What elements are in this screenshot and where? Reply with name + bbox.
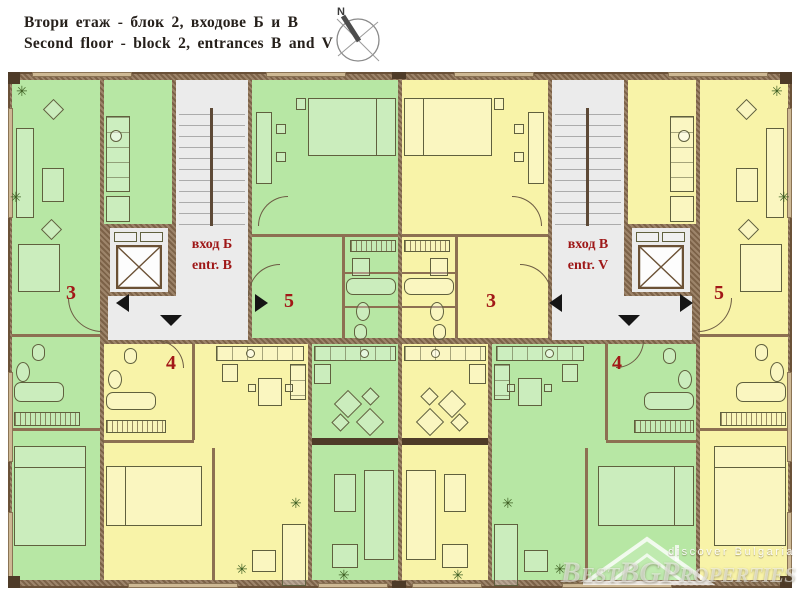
bed-pillow-line bbox=[125, 467, 126, 525]
toilet bbox=[433, 324, 446, 340]
plant: ✳ bbox=[452, 568, 464, 582]
window-sill bbox=[8, 512, 13, 582]
washing-machine bbox=[352, 258, 370, 276]
armchair bbox=[252, 550, 276, 572]
toilet bbox=[755, 344, 768, 361]
kitchen-sink bbox=[110, 130, 122, 142]
bed-pillow-line bbox=[715, 467, 785, 468]
desk-chair bbox=[514, 152, 524, 162]
kitchen-sink bbox=[431, 349, 440, 358]
stair-rail bbox=[210, 108, 213, 226]
side-table bbox=[444, 474, 466, 512]
floor-plan: ✳ ✳ ✳ bbox=[8, 72, 792, 588]
desk-chair bbox=[514, 124, 524, 134]
wardrobe bbox=[14, 412, 80, 426]
dining-chair bbox=[544, 384, 552, 392]
kitchen-counter bbox=[106, 116, 130, 192]
stove bbox=[222, 364, 238, 382]
wardrobe bbox=[350, 240, 396, 252]
plant: ✳ bbox=[771, 84, 783, 98]
side-table bbox=[334, 474, 356, 512]
arrow-right-icon bbox=[255, 294, 268, 312]
plant: ✳ bbox=[236, 562, 248, 576]
entrance-b-label: вход Б entr. B bbox=[176, 234, 248, 276]
plant: ✳ bbox=[502, 496, 514, 510]
dining-chair bbox=[248, 384, 256, 392]
storage-box bbox=[140, 232, 163, 242]
stairwell-left bbox=[176, 80, 248, 228]
apartment-number-4-left: 4 bbox=[166, 352, 176, 375]
page-title: Втори етаж - блок 2, входове Б и В Secon… bbox=[24, 12, 333, 54]
bed bbox=[598, 466, 694, 526]
apartment-number-5-left: 5 bbox=[284, 290, 294, 313]
stove bbox=[469, 364, 486, 384]
elevator-lobby-right bbox=[632, 228, 690, 292]
wall-segment bbox=[252, 234, 398, 237]
kitchen-sink bbox=[360, 349, 369, 358]
bathtub bbox=[106, 392, 156, 410]
dining-table bbox=[258, 378, 282, 406]
toilet bbox=[124, 348, 137, 364]
arrow-right-icon bbox=[680, 294, 693, 312]
wardrobe bbox=[106, 420, 166, 433]
storage-box bbox=[662, 232, 685, 242]
bathroom-sink bbox=[16, 362, 30, 382]
wall-segment bbox=[402, 234, 548, 237]
apartment-number-3-left: 3 bbox=[66, 282, 76, 305]
bed bbox=[308, 98, 396, 156]
arrow-down-icon bbox=[618, 315, 640, 326]
entrance-v-name-bg: вход В bbox=[552, 234, 624, 255]
elevator-icon bbox=[116, 245, 162, 289]
coffee-table bbox=[42, 168, 64, 202]
sofa bbox=[364, 470, 394, 560]
wall-segment bbox=[12, 428, 100, 431]
armchair bbox=[332, 544, 358, 568]
kitchen-counter bbox=[494, 364, 510, 400]
desk bbox=[528, 112, 544, 184]
wardrobe bbox=[720, 412, 786, 426]
plant: ✳ bbox=[778, 190, 790, 204]
wall-segment bbox=[342, 306, 398, 308]
window-sill bbox=[266, 72, 346, 77]
dining-chair bbox=[507, 384, 515, 392]
entrance-b-name-bg: вход Б bbox=[176, 234, 248, 255]
kitchen-counter bbox=[216, 346, 304, 361]
bathroom-sink bbox=[356, 302, 370, 321]
elevator-lobby-left bbox=[110, 228, 168, 292]
window-sill bbox=[412, 583, 482, 588]
dining-table bbox=[18, 244, 60, 292]
apartment-number-5-right: 5 bbox=[714, 282, 724, 305]
coffee-table bbox=[736, 168, 758, 202]
bathtub bbox=[346, 278, 396, 295]
elevator-icon bbox=[638, 245, 684, 289]
storage-box bbox=[114, 232, 137, 242]
toilet bbox=[354, 324, 367, 340]
wall-segment bbox=[700, 334, 788, 337]
wall-segment bbox=[606, 440, 696, 443]
terrace-divider bbox=[312, 438, 398, 445]
kitchen-counter bbox=[496, 346, 584, 361]
window-sill bbox=[8, 372, 13, 462]
desk-chair bbox=[276, 124, 286, 134]
window-sill bbox=[787, 372, 792, 462]
plant: ✳ bbox=[10, 190, 22, 204]
kitchen-counter bbox=[404, 346, 486, 361]
window-sill bbox=[318, 583, 388, 588]
page: Втори етаж - блок 2, входове Б и В Secon… bbox=[0, 0, 800, 600]
entrance-v-name-en: entr. V bbox=[552, 255, 624, 276]
desk-chair bbox=[276, 152, 286, 162]
wall-segment bbox=[104, 440, 194, 443]
title-english: Second floor - block 2, entrances B and … bbox=[24, 33, 333, 54]
bathroom-sink bbox=[430, 302, 444, 321]
armchair bbox=[524, 550, 548, 572]
kitchen-counter bbox=[290, 364, 306, 400]
wardrobe bbox=[634, 420, 694, 433]
terrace-divider bbox=[402, 438, 488, 445]
watermark-brand: BestBGProperties bbox=[556, 556, 796, 590]
bed bbox=[714, 446, 786, 546]
stove bbox=[106, 196, 130, 222]
kitchen-sink bbox=[545, 349, 554, 358]
sofa bbox=[494, 524, 518, 586]
wall-segment bbox=[212, 448, 215, 580]
desk bbox=[256, 112, 272, 184]
nightstand bbox=[494, 98, 504, 110]
entrance-b-name-en: entr. B bbox=[176, 255, 248, 276]
stove bbox=[562, 364, 578, 382]
column bbox=[392, 72, 406, 79]
bed-pillow-line bbox=[674, 467, 675, 525]
arrow-left-icon bbox=[116, 294, 129, 312]
kitchen-sink bbox=[246, 349, 255, 358]
bed-pillow-line bbox=[15, 467, 85, 468]
stair-rail bbox=[586, 108, 589, 226]
column bbox=[8, 576, 20, 588]
nightstand bbox=[296, 98, 306, 110]
sofa bbox=[282, 524, 306, 586]
storage-box bbox=[636, 232, 659, 242]
column bbox=[392, 581, 406, 588]
bathtub bbox=[404, 278, 454, 295]
bathtub bbox=[644, 392, 694, 410]
wall-segment bbox=[192, 344, 195, 440]
bed bbox=[404, 98, 492, 156]
stove bbox=[670, 196, 694, 222]
bathtub bbox=[736, 382, 786, 402]
stairwell-right bbox=[552, 80, 624, 228]
wall-segment bbox=[605, 344, 608, 440]
wall-segment bbox=[12, 334, 100, 337]
dining-table bbox=[518, 378, 542, 406]
wardrobe bbox=[404, 240, 450, 252]
compass-icon: N bbox=[331, 4, 387, 66]
compass-north-label: N bbox=[337, 6, 345, 18]
armchair bbox=[442, 544, 468, 568]
apartment-number-4-right: 4 bbox=[612, 352, 622, 375]
window-sill bbox=[454, 72, 534, 77]
window-sill bbox=[668, 72, 768, 77]
plant: ✳ bbox=[290, 496, 302, 510]
dining-chair bbox=[285, 384, 293, 392]
wall-segment bbox=[342, 272, 398, 274]
kitchen-sink bbox=[678, 130, 690, 142]
bed-pillow-line bbox=[376, 99, 377, 155]
plant: ✳ bbox=[338, 568, 350, 582]
bathtub bbox=[14, 382, 64, 402]
stove bbox=[314, 364, 331, 384]
bed bbox=[14, 446, 86, 546]
plant: ✳ bbox=[16, 84, 28, 98]
arrow-left-icon bbox=[549, 294, 562, 312]
dining-table bbox=[740, 244, 782, 292]
arrow-down-icon bbox=[160, 315, 182, 326]
toilet bbox=[663, 348, 676, 364]
bathroom-sink bbox=[108, 370, 122, 389]
window-sill bbox=[32, 72, 132, 77]
sofa bbox=[406, 470, 436, 560]
window-sill bbox=[128, 583, 238, 588]
toilet bbox=[32, 344, 45, 361]
wall-segment bbox=[455, 234, 458, 338]
washing-machine bbox=[430, 258, 448, 276]
bed-pillow-line bbox=[423, 99, 424, 155]
wall-segment bbox=[700, 428, 788, 431]
bed bbox=[106, 466, 202, 526]
kitchen-counter bbox=[670, 116, 694, 192]
apartment-number-3-right: 3 bbox=[486, 290, 496, 313]
title-bulgarian: Втори етаж - блок 2, входове Б и В bbox=[24, 12, 333, 33]
bathroom-sink bbox=[678, 370, 692, 389]
wall-segment bbox=[342, 234, 345, 338]
entrance-v-label: вход В entr. V bbox=[552, 234, 624, 276]
kitchen-counter bbox=[314, 346, 396, 361]
bathroom-sink bbox=[770, 362, 784, 382]
